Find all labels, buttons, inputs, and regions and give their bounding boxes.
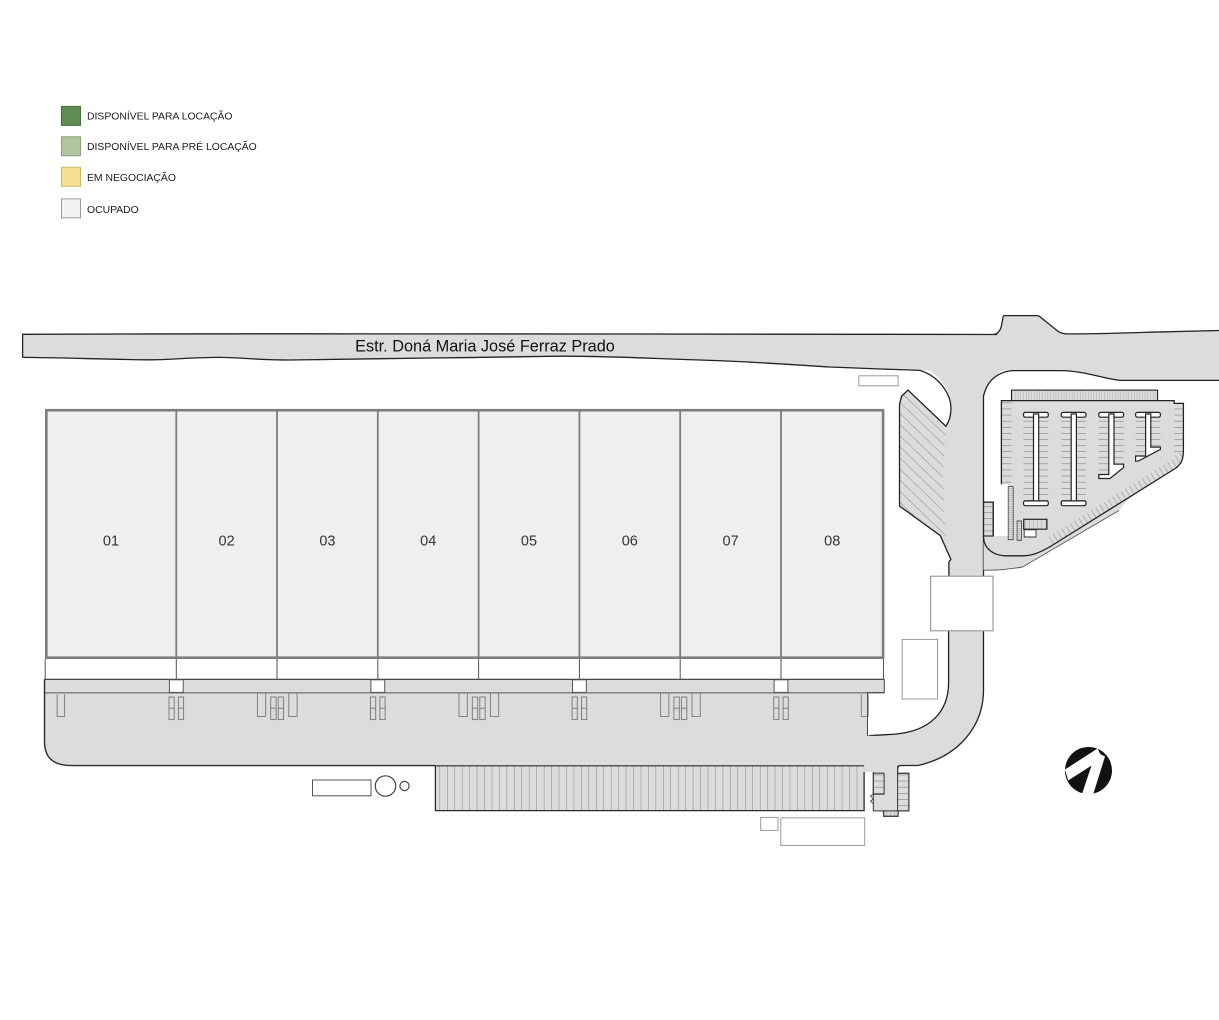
svg-text:04: 04	[420, 534, 436, 550]
svg-text:01: 01	[103, 534, 119, 550]
svg-text:02: 02	[219, 534, 235, 550]
svg-text:03: 03	[319, 534, 335, 550]
svg-text:06: 06	[622, 534, 638, 550]
svg-text:08: 08	[824, 534, 840, 550]
svg-text:DISPONÍVEL PARA LOCAÇÃO: DISPONÍVEL PARA LOCAÇÃO	[87, 109, 233, 122]
svg-text:EM NEGOCIAÇÃO: EM NEGOCIAÇÃO	[87, 171, 176, 184]
svg-text:DISPONÍVEL PARA PRÉ LOCAÇÃO: DISPONÍVEL PARA PRÉ LOCAÇÃO	[87, 140, 257, 153]
svg-text:OCUPADO: OCUPADO	[87, 205, 139, 216]
svg-text:07: 07	[723, 534, 739, 550]
svg-text:Estr. Doná Maria José Ferraz P: Estr. Doná Maria José Ferraz Prado	[355, 338, 615, 356]
svg-text:05: 05	[521, 534, 537, 550]
